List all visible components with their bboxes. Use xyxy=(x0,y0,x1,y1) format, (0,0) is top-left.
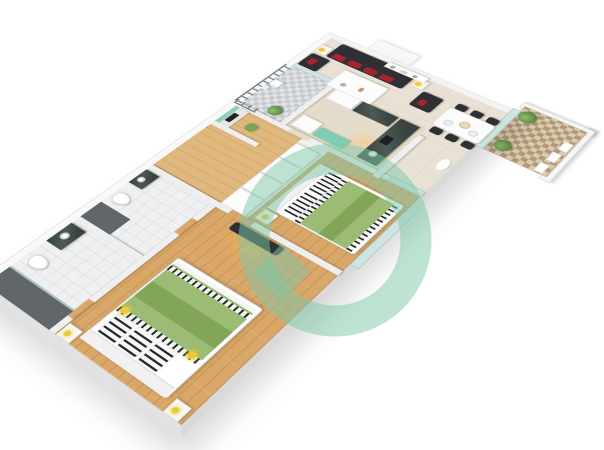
isometric-plan xyxy=(0,14,604,450)
floor-plan-render xyxy=(0,0,604,450)
